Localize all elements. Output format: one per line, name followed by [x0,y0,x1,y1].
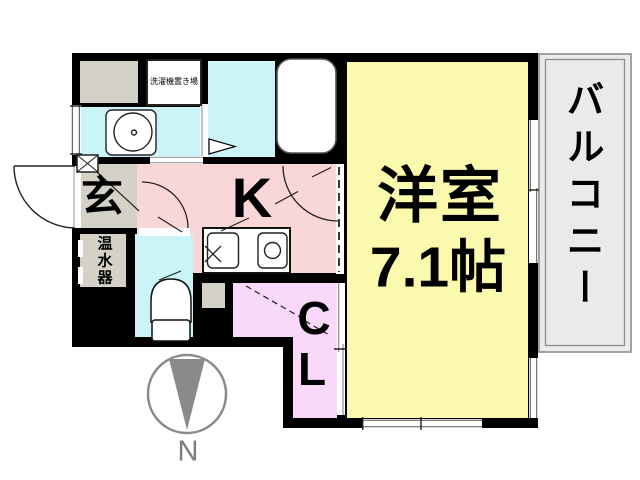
entrance-opening [71,166,81,228]
balcony-label: バルコニー [562,80,600,315]
water-heater-label: 温水器 [97,236,112,287]
bathtub [277,59,336,153]
laundry-label: 洗濯機置き場 [150,78,198,86]
closet-label-c: C [297,295,330,341]
kitchen-western-opening [336,164,344,274]
washbasin [106,110,156,155]
toilet-door-opening [139,228,190,236]
western-room-size: 7.1帖 [370,240,506,297]
entrance-label: 玄 [81,176,123,218]
compass [148,355,226,433]
kitchen-counter [203,228,290,273]
bath-door-opening [200,104,208,157]
burner [265,243,281,259]
western-room-label: 洋室 [377,166,503,227]
pipe-space-box [202,283,225,308]
floor-plan: 洗濯機置き場 玄 K 洋室 7.1帖 C L 温水器 バルコニー N [0,0,640,480]
water-heater-vent-bottom [78,267,83,284]
kitchen-label: K [232,170,272,226]
compass-north-label: N [178,438,199,467]
storage-area [80,61,138,103]
closet-label-l: L [298,346,326,392]
water-heater-vent-top [78,240,83,257]
kitchen-sink [208,233,239,268]
entrance-door-arc [14,166,75,228]
